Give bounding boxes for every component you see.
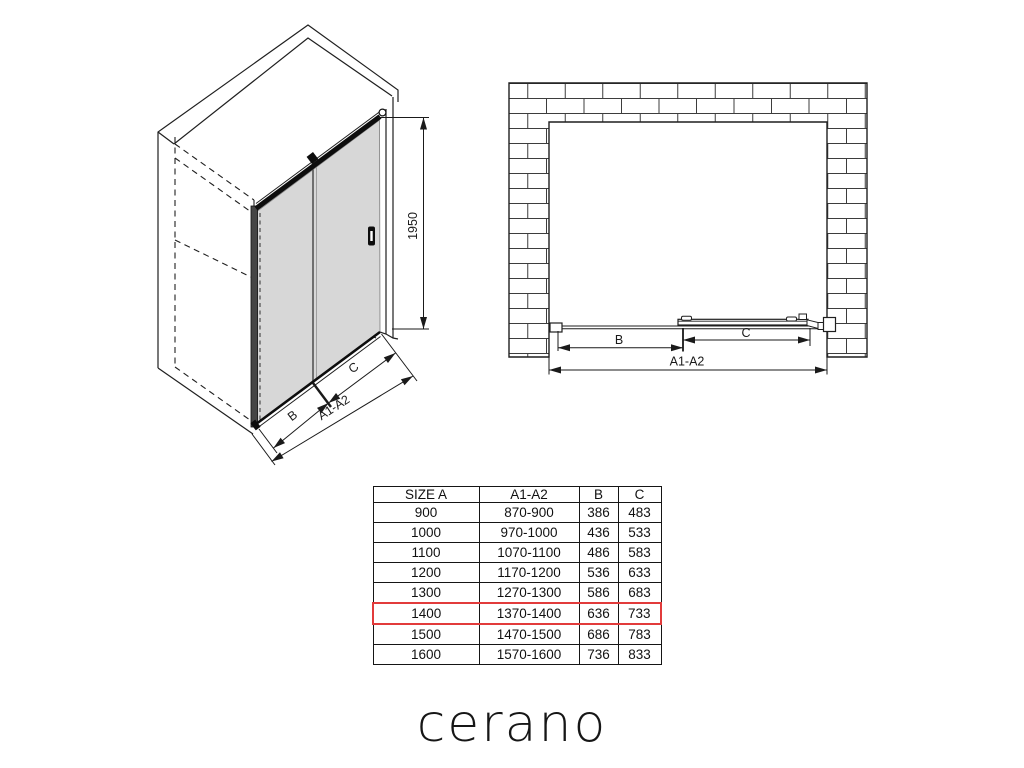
table-cell: 686 xyxy=(579,624,618,645)
table-header-cell: A1-A2 xyxy=(479,487,579,503)
table-row: 13001270-1300586683 xyxy=(373,583,661,604)
table-cell: 1100 xyxy=(373,543,479,563)
table-cell: 970-1000 xyxy=(479,523,579,543)
wall-profile xyxy=(251,206,258,427)
size-table: SIZE AA1-A2BC900870-9003864831000970-100… xyxy=(372,486,662,665)
table-cell: 900 xyxy=(373,503,479,523)
table-cell: 1470-1500 xyxy=(479,624,579,645)
wall-bracket-left xyxy=(550,323,562,332)
table-row: 12001170-1200536633 xyxy=(373,563,661,583)
table-cell: 586 xyxy=(579,583,618,604)
table-cell: 533 xyxy=(618,523,661,543)
table-header-cell: C xyxy=(618,487,661,503)
table-cell: 870-900 xyxy=(479,503,579,523)
table-cell: 1400 xyxy=(373,603,479,624)
dim-label-c: C xyxy=(346,359,362,376)
size-table-container: SIZE AA1-A2BC900870-9003864831000970-100… xyxy=(372,486,662,665)
front-view-drawing: B C A1-A2 xyxy=(500,75,880,385)
table-header-cell: B xyxy=(579,487,618,503)
table-cell: 1270-1300 xyxy=(479,583,579,604)
brand-logo: cerano xyxy=(0,694,1024,754)
dim-label-total: A1-A2 xyxy=(315,392,352,423)
table-cell: 1600 xyxy=(373,645,479,665)
table-row: 11001070-1100486583 xyxy=(373,543,661,563)
isometric-view-drawing: 1950 B C A1-A2 xyxy=(140,15,470,475)
table-cell: 483 xyxy=(618,503,661,523)
table-row: 16001570-1600736833 xyxy=(373,645,661,665)
dim-label-c: C xyxy=(741,326,750,340)
page: 1950 B C A1-A2 xyxy=(0,0,1024,768)
table-cell: 386 xyxy=(579,503,618,523)
table-cell: 736 xyxy=(579,645,618,665)
roller-right xyxy=(787,317,797,321)
table-cell: 783 xyxy=(618,624,661,645)
table-cell: 1370-1400 xyxy=(479,603,579,624)
stopper-knob xyxy=(799,314,807,320)
table-cell: 1000 xyxy=(373,523,479,543)
table-cell: 1500 xyxy=(373,624,479,645)
table-cell: 636 xyxy=(579,603,618,624)
table-cell: 733 xyxy=(618,603,661,624)
dim-label-height: 1950 xyxy=(406,212,420,240)
table-row: 900870-900386483 xyxy=(373,503,661,523)
table-cell: 486 xyxy=(579,543,618,563)
table-header-row: SIZE AA1-A2BC xyxy=(373,487,661,503)
table-cell: 1170-1200 xyxy=(479,563,579,583)
table-cell: 1570-1600 xyxy=(479,645,579,665)
dim-label-b: B xyxy=(285,408,300,424)
rail-end-knob xyxy=(379,109,386,116)
dim-label-total: A1-A2 xyxy=(670,355,705,369)
table-row: 14001370-1400636733 xyxy=(373,603,661,624)
table-cell: 683 xyxy=(618,583,661,604)
table-cell: 1300 xyxy=(373,583,479,604)
dim-label-b: B xyxy=(615,333,623,347)
table-cell: 583 xyxy=(618,543,661,563)
table-cell: 833 xyxy=(618,645,661,665)
table-row: 1000970-1000436533 xyxy=(373,523,661,543)
table-cell: 633 xyxy=(618,563,661,583)
table-cell: 536 xyxy=(579,563,618,583)
table-cell: 1200 xyxy=(373,563,479,583)
table-header-cell: SIZE A xyxy=(373,487,479,503)
table-cell: 1070-1100 xyxy=(479,543,579,563)
table-cell: 436 xyxy=(579,523,618,543)
roller-left xyxy=(682,316,692,320)
door-track xyxy=(550,314,836,332)
table-row: 15001470-1500686783 xyxy=(373,624,661,645)
